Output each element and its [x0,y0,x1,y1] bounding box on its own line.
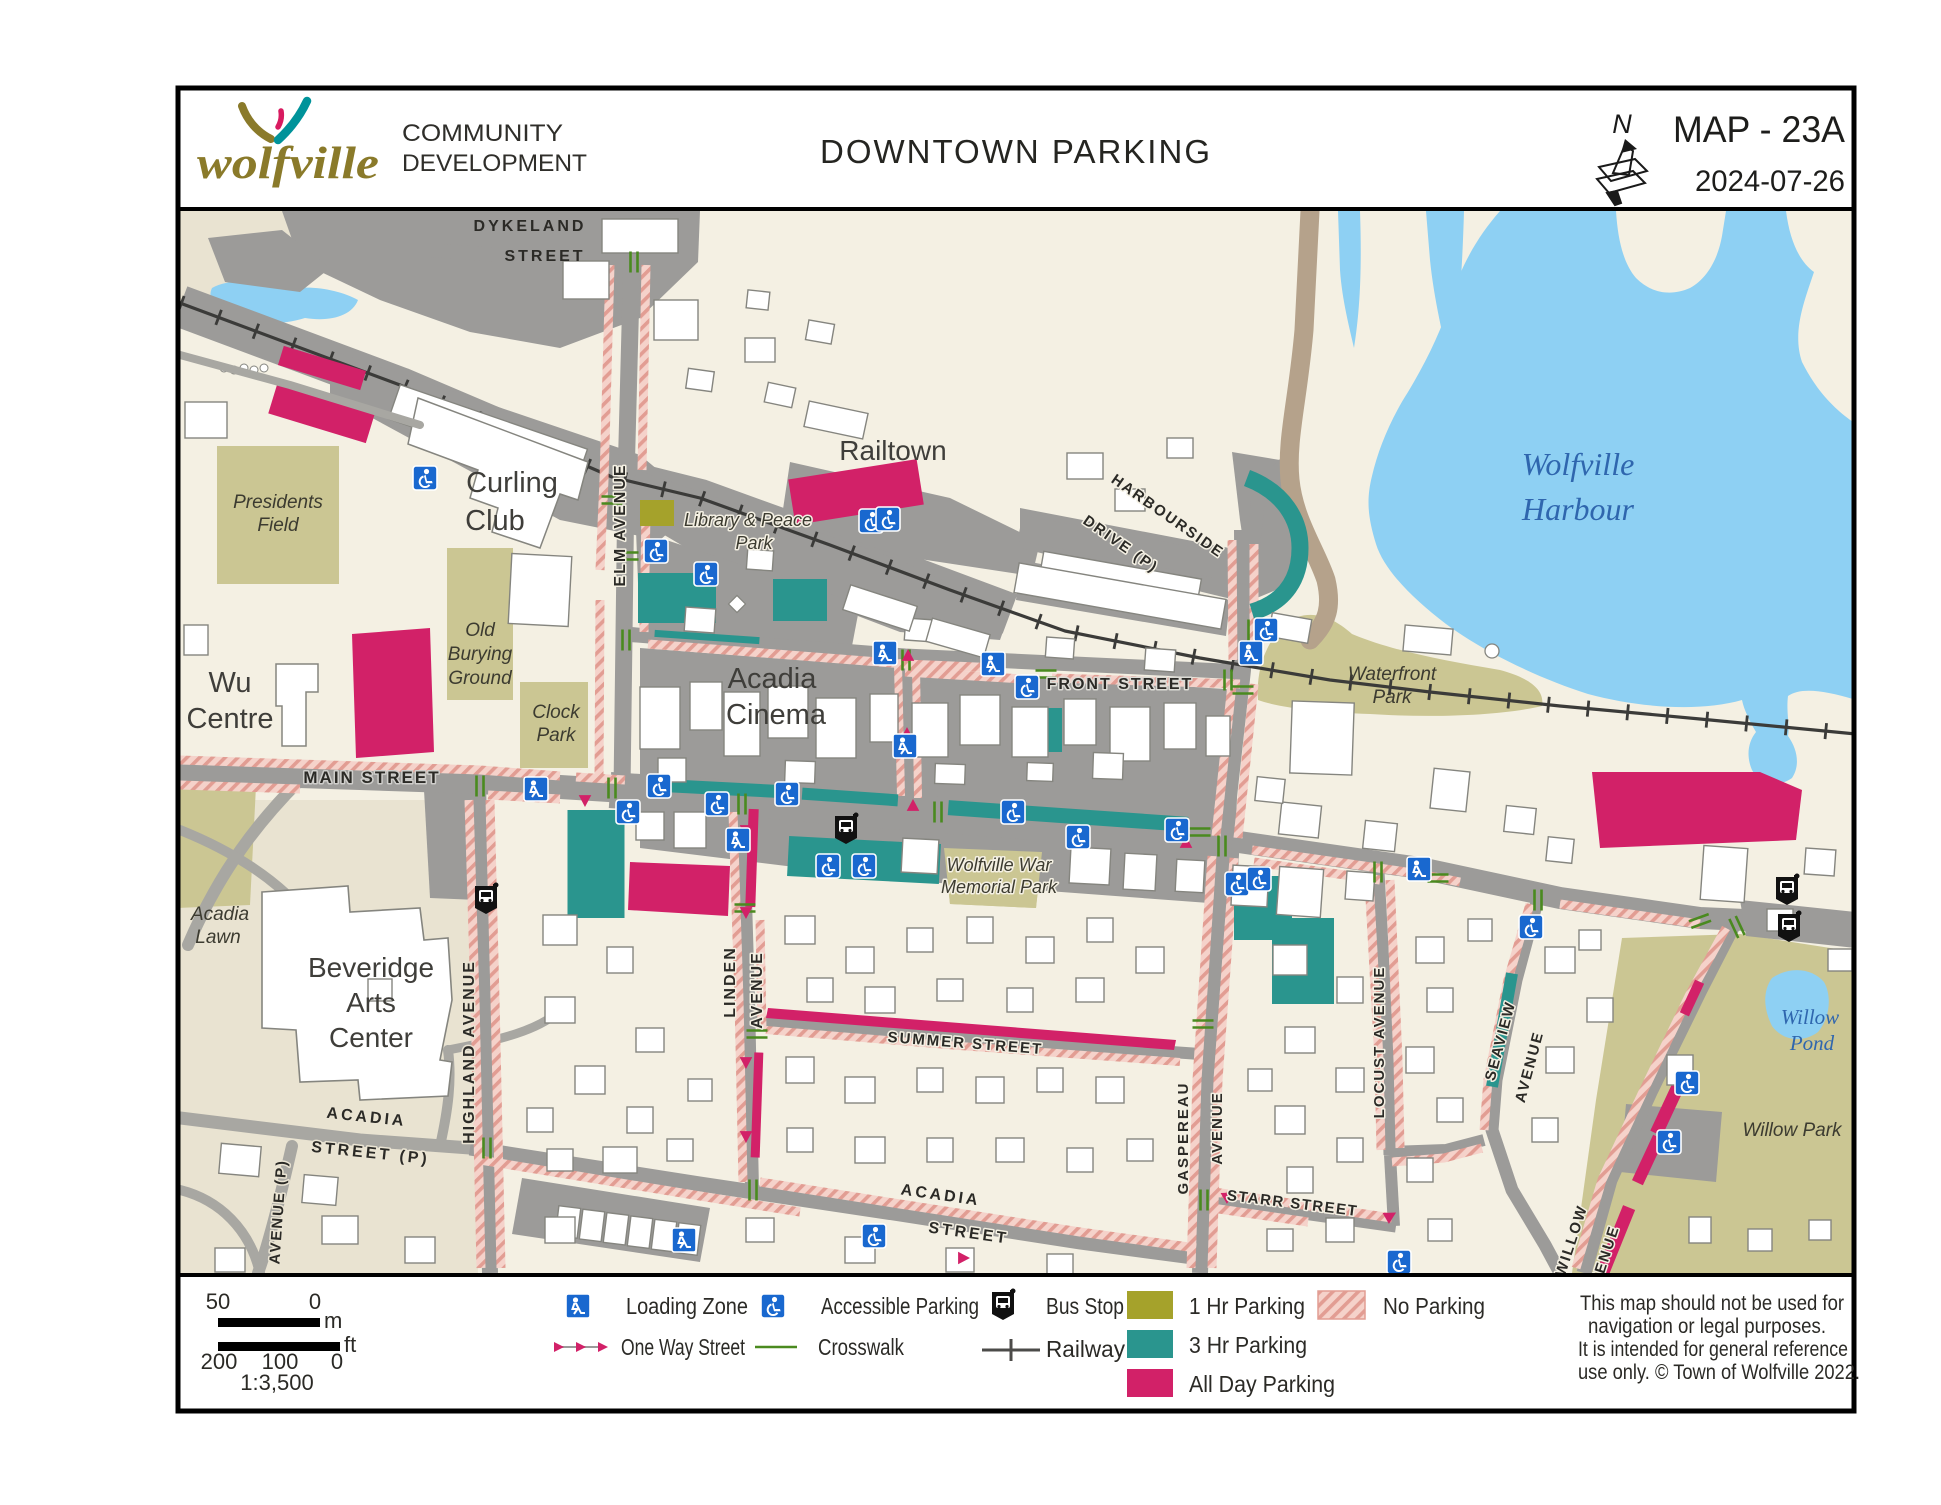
svg-text:Wolfville War: Wolfville War [947,855,1053,875]
svg-text:COMMUNITY: COMMUNITY [402,120,563,147]
svg-text:Library & Peace: Library & Peace [684,510,812,530]
svg-text:m: m [324,1308,342,1333]
svg-text:Willow Park: Willow Park [1742,1120,1843,1141]
svg-text:No Parking: No Parking [1383,1293,1485,1319]
svg-text:MAIN STREET: MAIN STREET [303,768,440,787]
svg-text:Lawn: Lawn [195,927,240,948]
svg-text:Acadia: Acadia [190,904,249,925]
svg-text:2024-07-26: 2024-07-26 [1695,165,1845,198]
svg-text:Club: Club [465,505,525,537]
svg-text:0: 0 [331,1349,343,1374]
svg-text:Memorial Park: Memorial Park [941,877,1058,897]
svg-text:Park: Park [536,725,577,746]
svg-text:Railway: Railway [1046,1336,1125,1362]
svg-text:This map should not be used fo: This map should not be used for [1580,1291,1844,1315]
svg-text:Wolfville: Wolfville [1522,446,1635,482]
svg-text:Curling: Curling [466,467,558,499]
svg-text:One Way Street: One Way Street [621,1334,745,1360]
svg-text:MAP - 23A: MAP - 23A [1673,109,1845,150]
svg-text:Presidents: Presidents [233,492,323,513]
svg-text:Wu: Wu [209,667,252,699]
svg-text:GASPEREAU: GASPEREAU [1175,1081,1192,1194]
svg-text:wolfville: wolfville [197,137,379,188]
svg-text:Crosswalk: Crosswalk [818,1334,904,1360]
svg-text:Accessible Parking: Accessible Parking [821,1293,979,1319]
svg-text:Waterfront: Waterfront [1348,664,1437,685]
svg-text:DOWNTOWN PARKING: DOWNTOWN PARKING [820,133,1212,170]
svg-text:0: 0 [309,1289,321,1314]
svg-text:200: 200 [201,1349,238,1374]
svg-text:AVENUE: AVENUE [749,951,766,1029]
svg-text:N: N [1612,109,1632,139]
svg-text:LINDEN: LINDEN [722,946,739,1018]
svg-text:Acadia: Acadia [728,663,818,695]
svg-text:It is intended for general ref: It is intended for general reference [1578,1337,1848,1361]
svg-text:Centre: Centre [186,703,273,735]
svg-text:Park: Park [1372,687,1413,708]
svg-text:Beveridge: Beveridge [308,952,434,983]
svg-text:DEVELOPMENT: DEVELOPMENT [402,150,587,177]
svg-text:50: 50 [206,1289,230,1314]
svg-text:Burying: Burying [448,644,513,665]
svg-text:DYKELAND: DYKELAND [474,218,587,235]
svg-text:Field: Field [257,515,300,536]
svg-text:Willow: Willow [1781,1005,1839,1029]
svg-text:FRONT STREET: FRONT STREET [1047,676,1194,693]
svg-text:Pond: Pond [1789,1031,1835,1055]
svg-text:Harbour: Harbour [1521,491,1635,527]
svg-text:Railtown: Railtown [839,435,946,466]
svg-text:3 Hr Parking: 3 Hr Parking [1189,1332,1307,1358]
svg-text:ELM AVENUE: ELM AVENUE [612,463,629,586]
svg-text:navigation or legal purposes.: navigation or legal purposes. [1588,1314,1826,1338]
svg-text:Loading Zone: Loading Zone [626,1293,748,1319]
svg-text:Park: Park [735,533,773,553]
svg-text:1 Hr Parking: 1 Hr Parking [1189,1293,1305,1319]
svg-text:HIGHLAND AVENUE: HIGHLAND AVENUE [461,960,478,1144]
svg-text:1:3,500: 1:3,500 [240,1370,313,1395]
svg-text:Ground: Ground [448,668,513,689]
svg-text:Cinema: Cinema [726,699,827,731]
svg-text:LOCUST AVENUE: LOCUST AVENUE [1371,966,1388,1119]
svg-text:Clock: Clock [532,702,581,723]
svg-text:All Day Parking: All Day Parking [1189,1371,1335,1397]
svg-text:Center: Center [329,1022,413,1053]
svg-text:Bus Stop: Bus Stop [1046,1293,1124,1319]
svg-text:STREET: STREET [504,248,585,265]
svg-text:Old: Old [465,620,496,641]
svg-text:ft: ft [344,1332,356,1357]
svg-text:use only. © Town of Wolfville: use only. © Town of Wolfville 2022. [1578,1360,1860,1384]
svg-text:Arts: Arts [346,987,396,1018]
svg-text:AVENUE: AVENUE [1209,1091,1226,1164]
